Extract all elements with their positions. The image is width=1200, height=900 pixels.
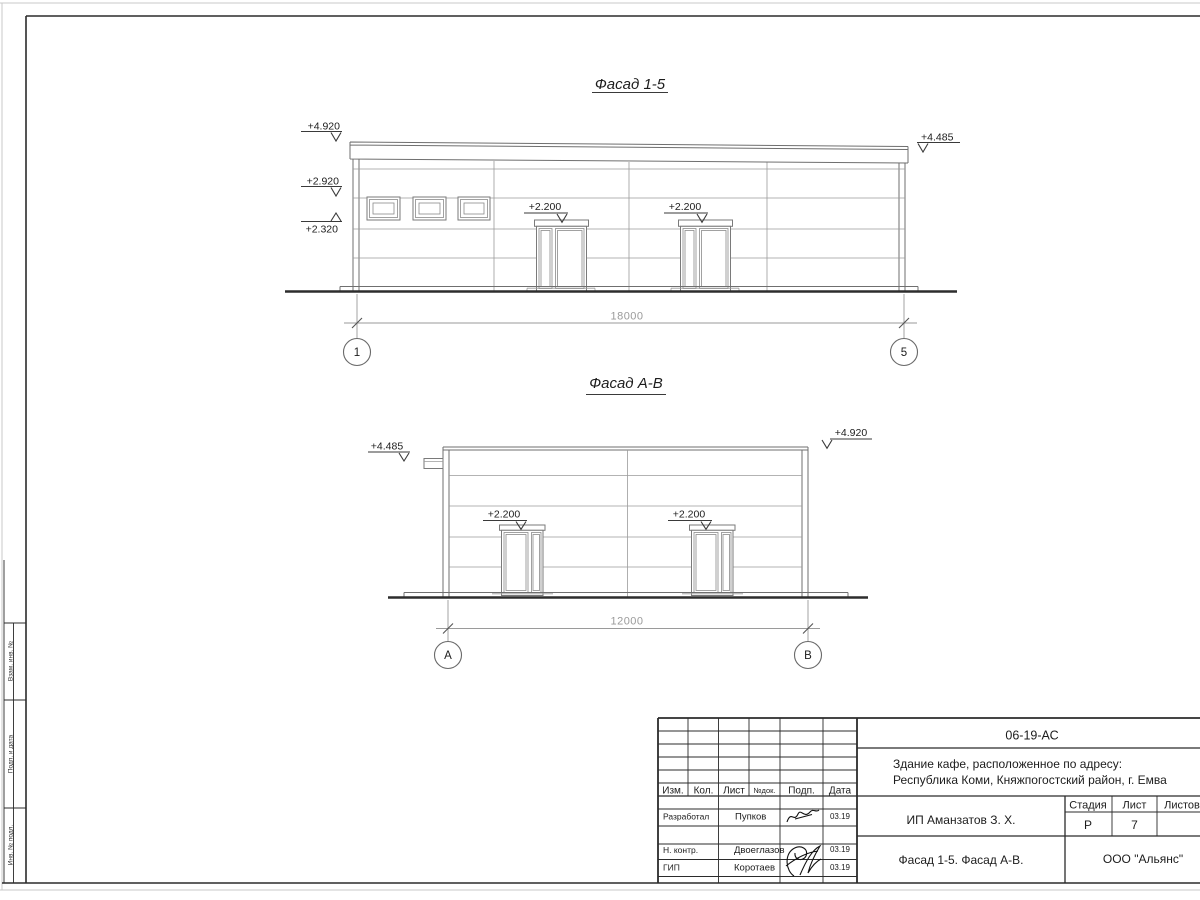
title-block: Изм. Кол. Лист №док. Подп. Дата Разработ…: [658, 718, 1200, 883]
margin-label-inv: Инв. № подл.: [8, 825, 15, 866]
facade2-door-2: [690, 525, 736, 596]
sheet-number: 7: [1131, 818, 1138, 832]
col-data: Дата: [829, 786, 852, 797]
stage-label: Стадия: [1069, 800, 1107, 812]
row-date-razrabotal: 03.19: [830, 812, 851, 821]
project-address-line2: Республика Коми, Княжпогостский район, г…: [893, 773, 1167, 787]
row-name-pupkov: Пупков: [735, 812, 766, 823]
drain-spout: [424, 459, 443, 469]
facade-1-5-drawing: Фасад 1-5: [285, 76, 960, 366]
row-role-gip: ГИП: [663, 863, 680, 873]
margin-label-podp: Подп. и дата: [8, 734, 15, 773]
signature-korotaev: [786, 846, 821, 876]
elevation-mark-door2: +2.200: [673, 509, 706, 521]
axis-marker-5: 5: [901, 347, 907, 359]
row-role-nkontr: Н. контр.: [663, 845, 698, 855]
sheet-label: Лист: [1123, 800, 1147, 812]
elevation-mark-door1: +2.200: [529, 201, 562, 213]
col-ndok: №док.: [754, 786, 776, 795]
elevation-mark-4920-right: +4.920: [835, 427, 868, 439]
elevation-mark-2320: +2.320: [306, 224, 339, 236]
facade1-door-1: [535, 220, 589, 291]
row-name-dvoeglazov: Двоеглазов: [734, 845, 785, 856]
facade1-title: Фасад 1-5: [595, 76, 666, 93]
drawing-title: Фасад 1-5. Фасад А-В.: [899, 853, 1024, 867]
row-date-nkontr: 03.19: [830, 845, 851, 854]
project-address-line1: Здание кафе, расположенное по адресу:: [893, 757, 1122, 771]
margin-column: Взам. инв. № Подп. и дата Инв. № подл.: [4, 560, 26, 883]
facade2-door-1: [500, 525, 546, 596]
dimension-text-18000: 18000: [610, 311, 643, 323]
dimension-text-12000: 12000: [610, 616, 643, 628]
elevation-mark-2920: +2.920: [307, 176, 340, 188]
elevation-mark-4920: +4.920: [308, 121, 341, 133]
facade2-elevation-marks: +4.485 +4.920 +2.200 +2.200: [368, 427, 872, 529]
axis-marker-b: В: [804, 650, 812, 662]
sheets-label: Листов: [1164, 800, 1200, 812]
row-role-razrabotal: Разработал: [663, 812, 709, 822]
col-list: Лист: [723, 786, 745, 797]
client-name: ИП Аманзатов З. Х.: [906, 813, 1015, 827]
elevation-mark-4485-left: +4.485: [371, 441, 404, 453]
col-izm: Изм.: [662, 786, 683, 797]
company-name: ООО "Альянс": [1103, 852, 1183, 866]
drawing-sheet: Взам. инв. № Подп. и дата Инв. № подл. Ф…: [0, 0, 1200, 900]
facade-a-b-drawing: Фасад А-В +4.485: [368, 375, 872, 669]
col-kol: Кол.: [694, 786, 714, 797]
elevation-mark-door2: +2.200: [669, 201, 702, 213]
facade1-dimension: 18000 1 5: [344, 294, 918, 366]
axis-marker-1: 1: [354, 347, 360, 359]
facade1-door-2: [679, 220, 733, 291]
axis-marker-a: А: [444, 650, 452, 662]
col-podp: Подп.: [788, 786, 815, 797]
facade2-dimension: 12000 А В: [435, 600, 822, 669]
document-number: 06-19-АС: [1005, 729, 1058, 743]
elevation-mark-4485: +4.485: [921, 132, 954, 144]
elevation-mark-door1: +2.200: [488, 509, 521, 521]
row-date-gip: 03.19: [830, 863, 851, 872]
stage-value: Р: [1084, 818, 1092, 832]
margin-label-vzam: Взам. инв. №: [8, 641, 15, 681]
row-name-korotaev: Коротаев: [734, 863, 775, 874]
drawing-canvas: Взам. инв. № Подп. и дата Инв. № подл. Ф…: [0, 0, 1200, 900]
facade2-title: Фасад А-В: [589, 375, 663, 392]
facade1-windows: [367, 197, 490, 220]
signature-pupkov: [787, 810, 819, 822]
